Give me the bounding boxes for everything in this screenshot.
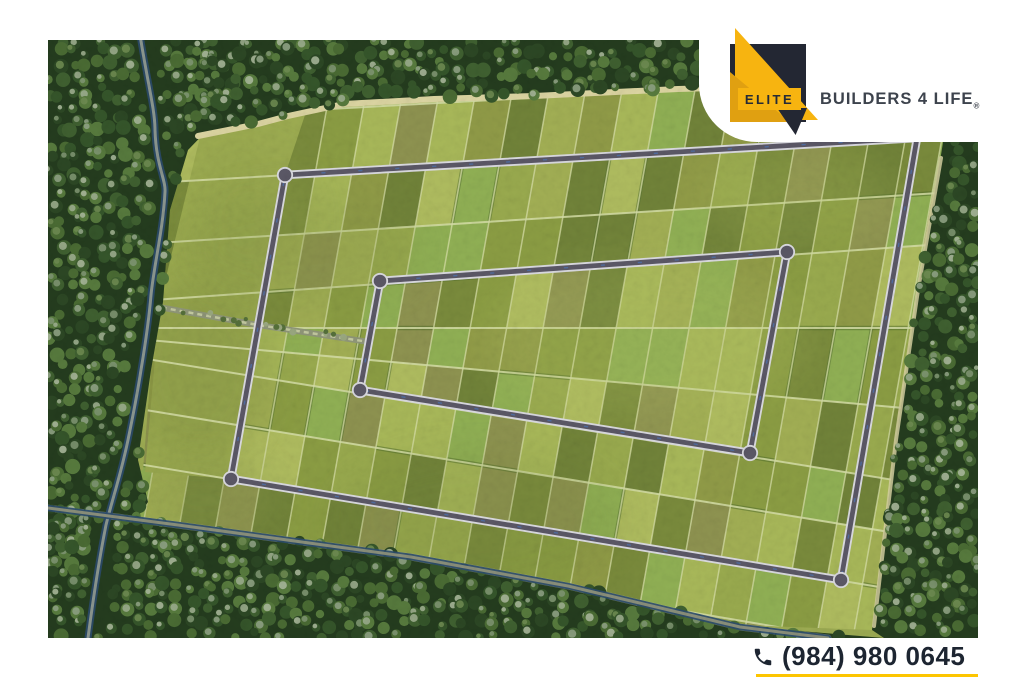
logo-elite-badge: ELITE [738,88,801,110]
logo-card: ELITE BUILDERS 4 LIFE® [699,0,1024,142]
phone-icon [752,646,774,668]
phone-number: (984) 980 0645 [782,641,965,672]
phone-underline-accent [756,674,978,677]
contact-phone-block: (984) 980 0645 [752,641,980,681]
logo-tagline: BUILDERS 4 LIFE® [820,90,979,110]
flyer-canvas: ELITE BUILDERS 4 LIFE® (984) 980 0645 [0,0,1024,683]
logo-tagline-text: BUILDERS 4 LIFE [820,90,973,108]
registered-mark: ® [973,101,979,110]
elite-triangle-logo-icon: ELITE [699,0,839,142]
